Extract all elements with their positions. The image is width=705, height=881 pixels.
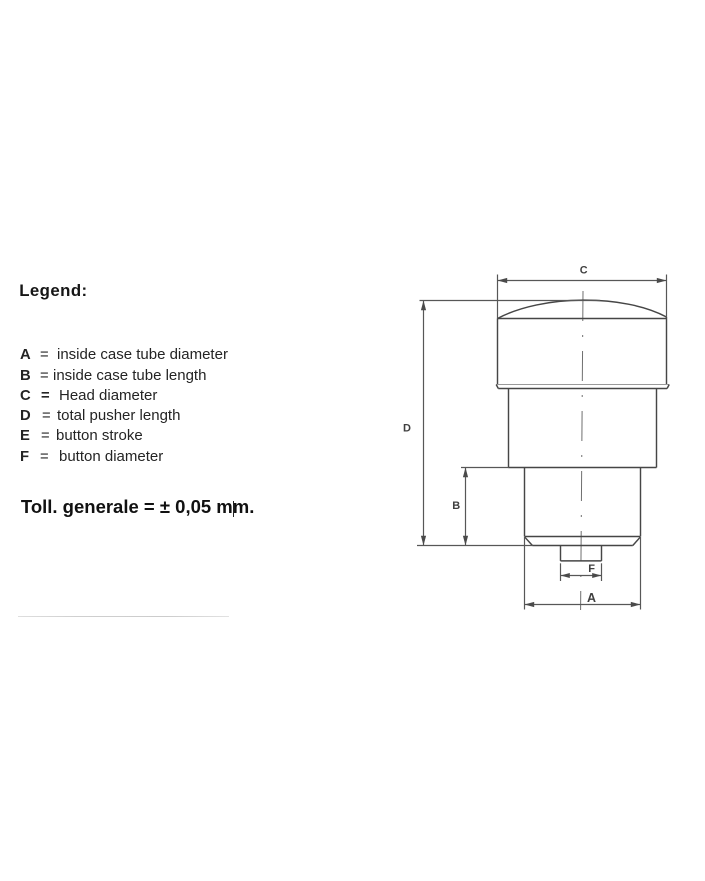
svg-text:F: F xyxy=(588,563,595,575)
svg-text:B: B xyxy=(452,500,460,512)
svg-text:D: D xyxy=(403,422,411,434)
svg-text:C: C xyxy=(580,264,588,276)
svg-text:A: A xyxy=(587,591,596,605)
